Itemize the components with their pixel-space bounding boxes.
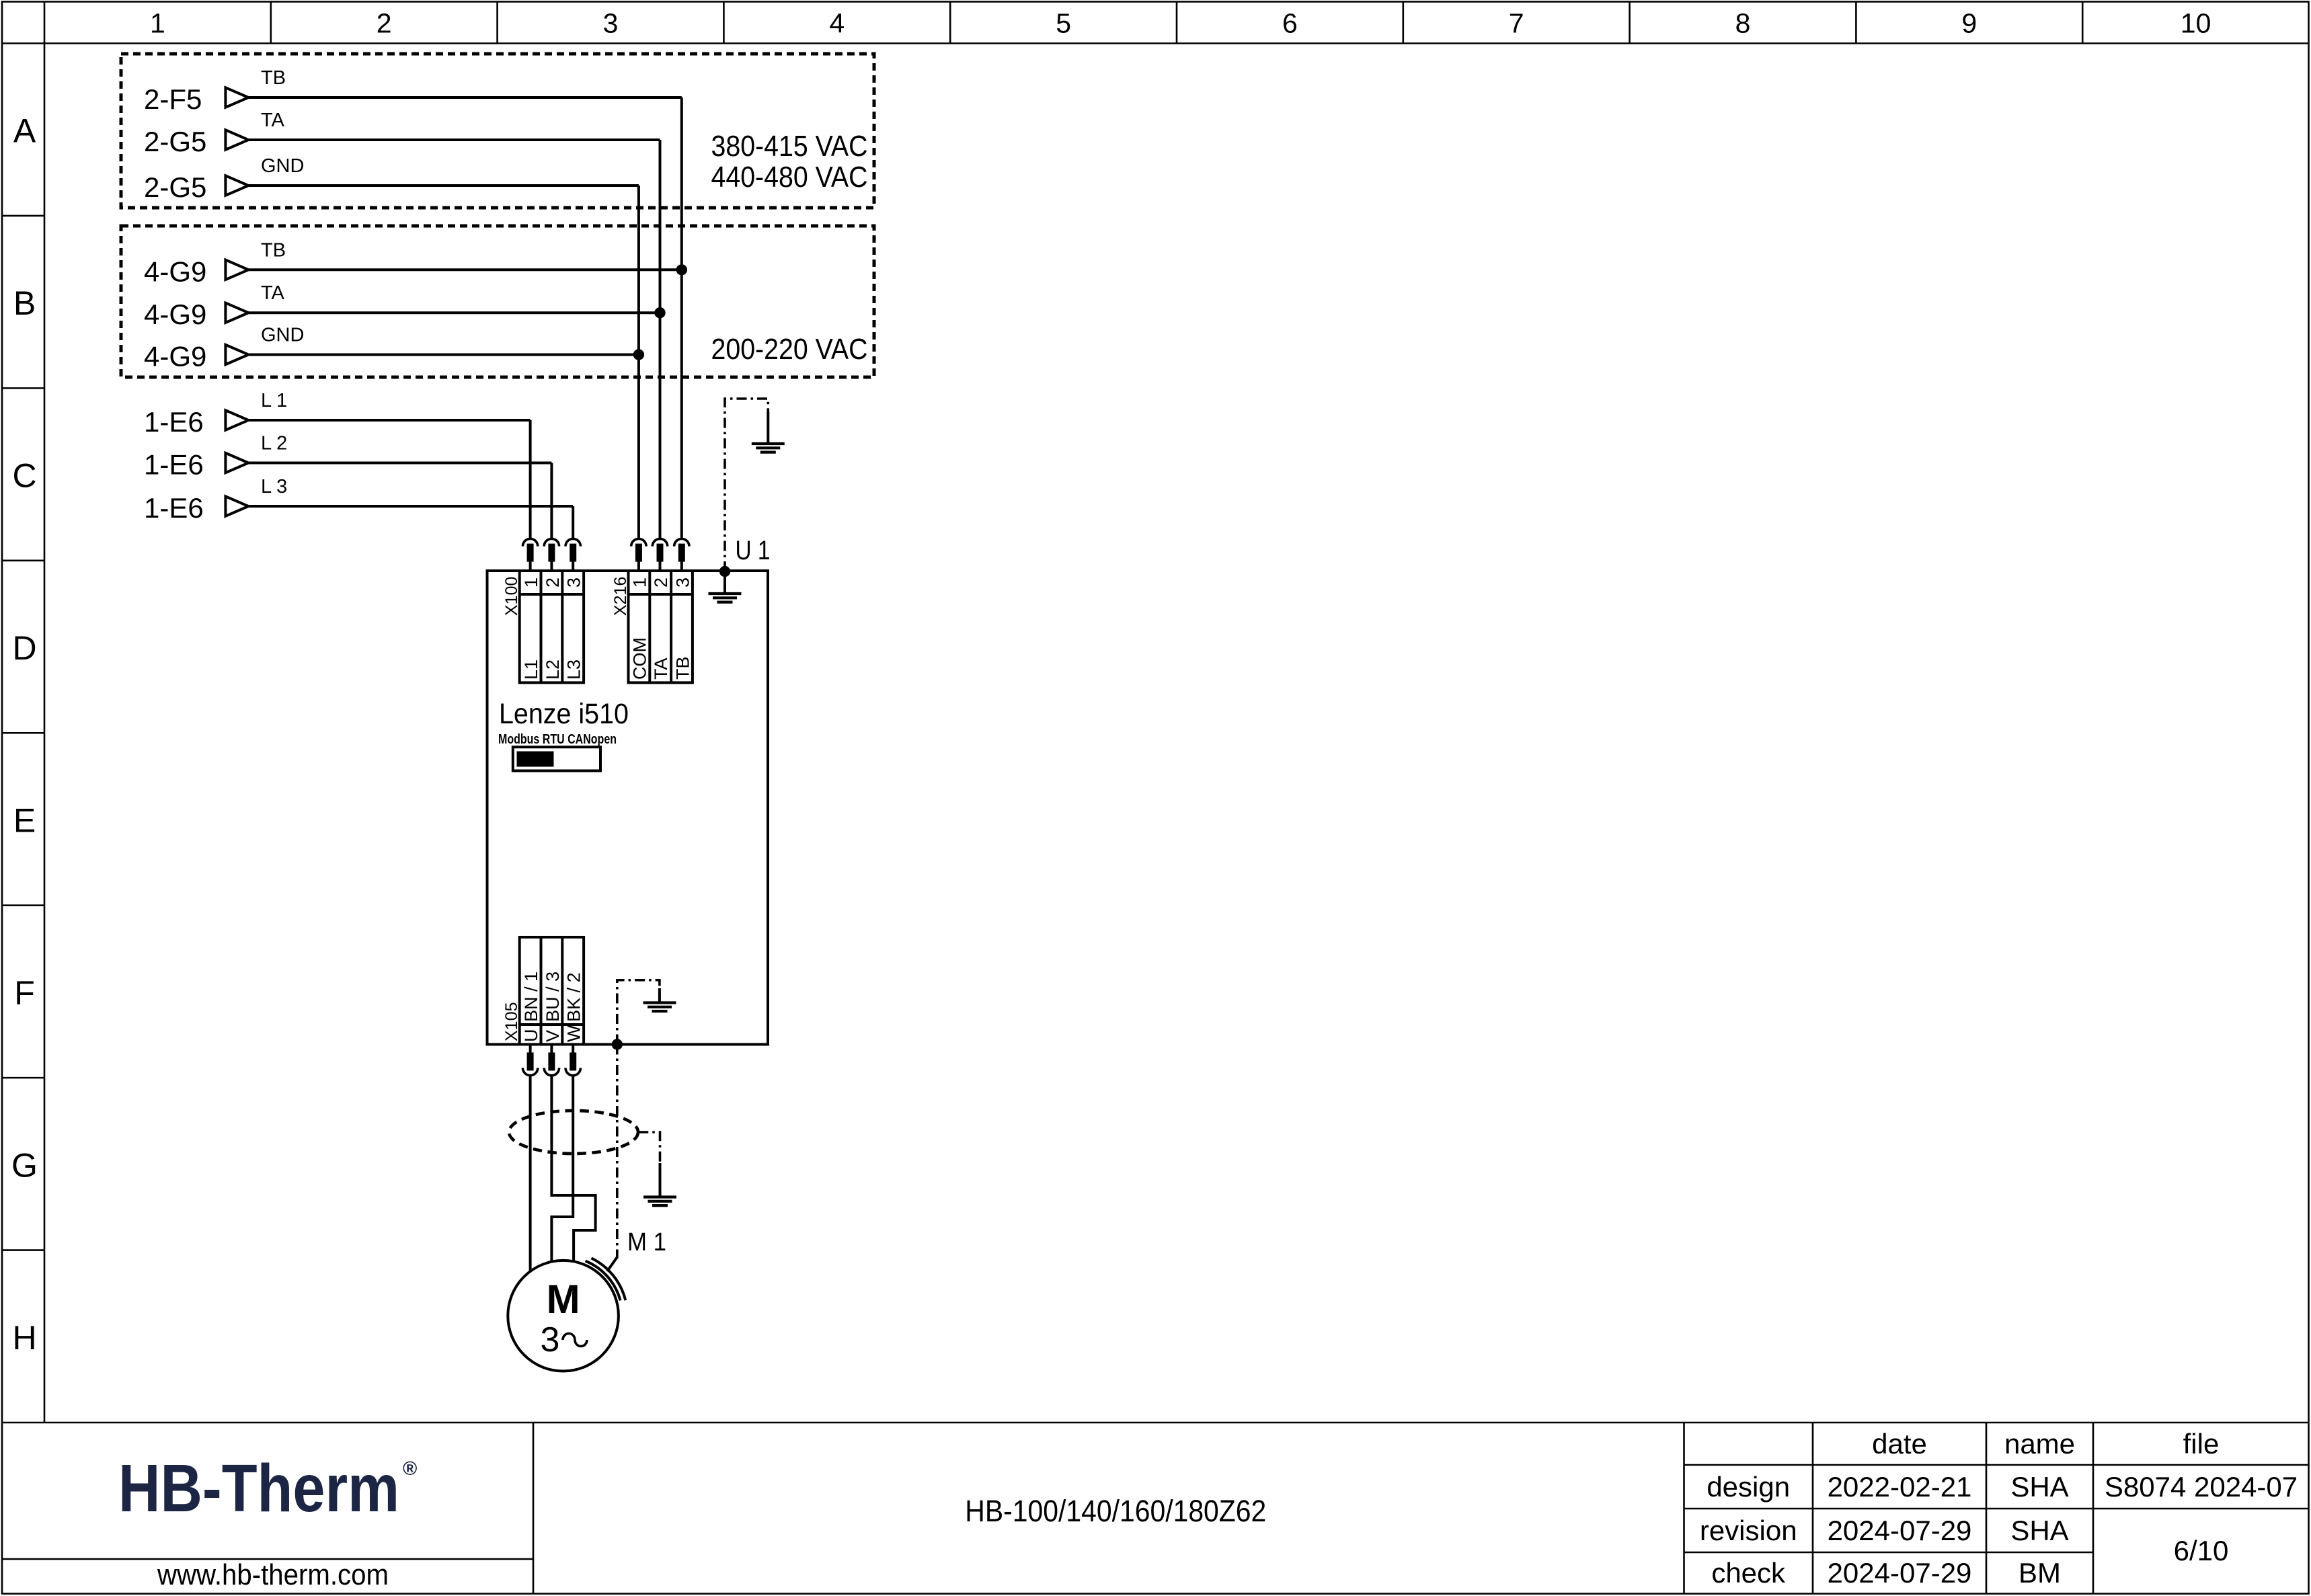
svg-text:2-G5: 2-G5 (144, 171, 206, 203)
svg-text:C: C (12, 457, 36, 495)
svg-text:H: H (12, 1319, 36, 1357)
svg-text:7: 7 (1509, 8, 1524, 39)
svg-text:A: A (13, 112, 36, 150)
svg-text:HB-100/140/160/180Z62: HB-100/140/160/180Z62 (965, 1494, 1266, 1528)
svg-text:4: 4 (829, 8, 845, 39)
svg-text:W: W (564, 1025, 584, 1042)
svg-text:6/10: 6/10 (2174, 1535, 2229, 1566)
svg-text:S8074 2024-07: S8074 2024-07 (2105, 1471, 2298, 1503)
svg-text:1: 1 (629, 577, 650, 588)
svg-text:9: 9 (1961, 8, 1977, 39)
svg-text:4-G9: 4-G9 (144, 341, 206, 372)
svg-text:TA: TA (261, 282, 285, 304)
svg-text:L3: L3 (564, 660, 584, 680)
svg-text:TB: TB (672, 656, 693, 680)
svg-text:F: F (14, 974, 35, 1012)
svg-text:4-G9: 4-G9 (144, 298, 206, 330)
svg-text:www.hb-therm.com: www.hb-therm.com (157, 1558, 389, 1591)
svg-text:L 1: L 1 (261, 390, 287, 411)
svg-text:E: E (13, 801, 36, 839)
svg-text:440-480 VAC: 440-480 VAC (711, 161, 868, 194)
svg-text:COM: COM (629, 637, 650, 680)
svg-text:L 2: L 2 (261, 433, 287, 454)
svg-text:10: 10 (2181, 8, 2211, 39)
svg-text:3: 3 (672, 577, 693, 588)
svg-text:Lenze i510: Lenze i510 (499, 698, 629, 730)
svg-text:SHA: SHA (2010, 1515, 2068, 1546)
svg-text:TA: TA (651, 658, 671, 680)
svg-text:Modbus RTU CANopen: Modbus RTU CANopen (498, 731, 617, 747)
svg-text:2-G5: 2-G5 (144, 126, 206, 157)
svg-text:3: 3 (564, 577, 584, 588)
svg-text:X100: X100 (502, 577, 521, 616)
svg-text:1-E6: 1-E6 (144, 406, 204, 438)
svg-text:2024-07-29: 2024-07-29 (1828, 1557, 1972, 1589)
svg-text:200-220 VAC: 200-220 VAC (711, 333, 868, 366)
svg-text:BN / 1: BN / 1 (521, 971, 541, 1022)
svg-text:TB: TB (261, 239, 286, 261)
svg-text:M 1: M 1 (627, 1228, 666, 1256)
svg-text:380-415 VAC: 380-415 VAC (711, 130, 868, 163)
svg-text:U: U (521, 1029, 541, 1043)
svg-text:BK / 2: BK / 2 (564, 972, 584, 1022)
svg-text:U 1: U 1 (736, 536, 771, 565)
svg-text:GND: GND (261, 155, 304, 177)
svg-text:G: G (11, 1146, 38, 1184)
svg-text:V: V (543, 1030, 563, 1042)
svg-text:3: 3 (603, 8, 619, 39)
svg-text:®: ® (403, 1458, 417, 1480)
svg-text:file: file (2183, 1428, 2220, 1460)
svg-text:L2: L2 (543, 660, 563, 680)
svg-text:2: 2 (651, 577, 671, 588)
svg-text:2: 2 (543, 577, 563, 588)
svg-text:SHA: SHA (2010, 1471, 2068, 1503)
svg-text:date: date (1872, 1428, 1927, 1460)
svg-text:M: M (547, 1277, 580, 1322)
svg-text:check: check (1711, 1557, 1786, 1589)
svg-text:2024-07-29: 2024-07-29 (1828, 1515, 1972, 1546)
svg-text:TA: TA (261, 110, 285, 131)
svg-text:X105: X105 (502, 1002, 521, 1041)
svg-text:4-G9: 4-G9 (144, 255, 206, 287)
svg-text:2: 2 (377, 8, 392, 39)
svg-text:B: B (13, 284, 36, 322)
svg-text:BM: BM (2019, 1557, 2061, 1589)
svg-text:3: 3 (541, 1320, 560, 1359)
svg-text:1: 1 (521, 577, 541, 588)
svg-text:2-F5: 2-F5 (144, 83, 202, 115)
svg-text:X216: X216 (611, 577, 630, 616)
svg-text:name: name (2004, 1428, 2075, 1460)
svg-text:BU / 3: BU / 3 (543, 971, 563, 1022)
svg-text:1-E6: 1-E6 (144, 449, 204, 481)
svg-text:8: 8 (1735, 8, 1751, 39)
svg-text:2022-02-21: 2022-02-21 (1828, 1471, 1972, 1503)
svg-text:L 3: L 3 (261, 476, 287, 497)
svg-text:HB-Therm: HB-Therm (118, 1451, 399, 1526)
svg-text:6: 6 (1282, 8, 1298, 39)
svg-text:5: 5 (1056, 8, 1071, 39)
svg-text:D: D (12, 629, 36, 667)
svg-text:1-E6: 1-E6 (144, 492, 204, 524)
svg-text:TB: TB (261, 67, 286, 89)
svg-text:design: design (1707, 1471, 1790, 1503)
svg-text:1: 1 (150, 8, 165, 39)
svg-text:L1: L1 (521, 660, 541, 680)
svg-text:revision: revision (1700, 1515, 1797, 1546)
svg-text:GND: GND (261, 325, 304, 346)
